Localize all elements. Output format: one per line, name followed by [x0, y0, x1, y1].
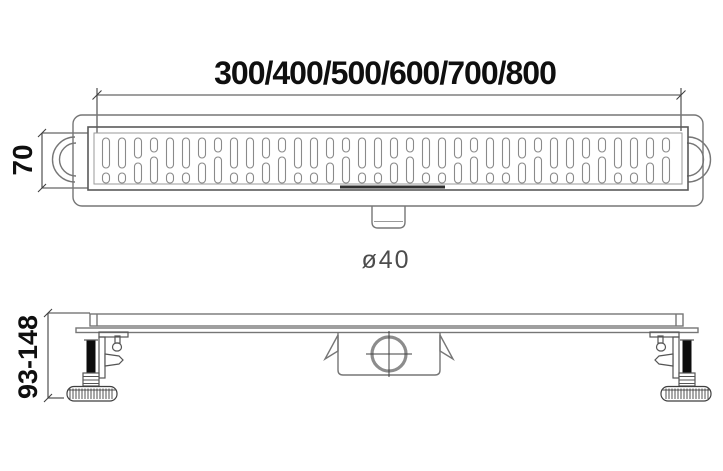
- grate-slot: [343, 157, 350, 183]
- grate-slot: [183, 173, 190, 183]
- grate-slot: [503, 138, 510, 168]
- adjustable-foot-right: [650, 332, 711, 401]
- grate-slot: [311, 138, 318, 168]
- height-range-label: 93-148: [11, 297, 45, 417]
- grate-slot: [359, 173, 366, 183]
- grate-slot: [503, 173, 510, 183]
- grate-slot: [551, 138, 558, 168]
- grate-slot: [583, 138, 590, 158]
- right-end-cap-arc-inner: [687, 143, 704, 176]
- grate-slot: [439, 138, 446, 168]
- grate-slot: [135, 138, 142, 158]
- grate-slot: [519, 163, 526, 183]
- foot-pin-cap: [113, 343, 122, 351]
- grate-slot: [359, 138, 366, 168]
- flange-plate: [76, 328, 698, 333]
- outlet-stub: [372, 206, 405, 228]
- grate-slot: [567, 138, 574, 168]
- grate-slot: [183, 138, 190, 168]
- grate-slot: [375, 173, 382, 183]
- grate-slot: [279, 138, 286, 152]
- grate-slot: [119, 173, 126, 183]
- grate-slot: [663, 157, 670, 183]
- grate-slot: [535, 138, 542, 152]
- grate-slot: [263, 163, 270, 183]
- grate-slot: [599, 138, 606, 152]
- grate-slot: [631, 173, 638, 183]
- foot-bracket-plate: [99, 337, 105, 378]
- grate-slot: [615, 138, 622, 168]
- outlet-diameter-label: ø40: [326, 245, 446, 275]
- grate-slot: [327, 138, 334, 158]
- grate-slot: [535, 157, 542, 183]
- grate-slot: [375, 138, 382, 168]
- grate-slot: [215, 157, 222, 183]
- grate-slot: [167, 173, 174, 183]
- grate-slot: [423, 138, 430, 168]
- trap-wing-right: [440, 335, 453, 359]
- grate-slot: [103, 138, 110, 168]
- grate-slot: [247, 138, 254, 168]
- grate-slot: [151, 157, 158, 183]
- grate-slot: [231, 138, 238, 168]
- trap-wing-left: [325, 335, 338, 359]
- foot-adjuster-sleeve: [83, 373, 99, 386]
- grate-slot: [455, 138, 462, 158]
- grate-slot: [279, 157, 286, 183]
- grate-slot: [103, 173, 110, 183]
- grate-slot: [263, 138, 270, 158]
- grate-slot: [327, 163, 334, 183]
- outlet-stub-outline: [372, 206, 405, 228]
- grate-slot: [487, 138, 494, 168]
- width-dimension-label: 70: [5, 130, 41, 190]
- grate-slot: [151, 138, 158, 152]
- grate-slot: [519, 138, 526, 158]
- grate-slot: [455, 163, 462, 183]
- grate-frame-outer: [88, 127, 688, 190]
- grate-slot-pattern: [103, 138, 670, 183]
- technical-drawing: 300/400/500/600/700/800 70 ø40 93-148: [0, 0, 723, 471]
- channel-body-side: [90, 314, 683, 326]
- grate-slot: [439, 173, 446, 183]
- adjustable-foot-left: [67, 332, 128, 401]
- grate-slot: [487, 173, 494, 183]
- grate-slot: [471, 138, 478, 152]
- grate-slot: [615, 173, 622, 183]
- foot-knurling: [70, 389, 112, 400]
- grate-slot: [247, 173, 254, 183]
- grate-slot: [599, 157, 606, 183]
- grate-slot: [583, 163, 590, 183]
- grate-slot: [647, 138, 654, 158]
- grate-slot: [407, 157, 414, 183]
- foot-clip: [105, 354, 123, 366]
- grate-slot: [231, 173, 238, 183]
- grate-slot: [119, 138, 126, 168]
- grate-slot: [631, 138, 638, 168]
- foot-threaded-rod: [87, 340, 96, 373]
- width-dimension: [38, 129, 88, 192]
- side-view: [44, 309, 711, 402]
- grate-slot: [391, 163, 398, 183]
- grate-slot: [215, 138, 222, 152]
- grate-slot: [423, 173, 430, 183]
- grate-slot: [407, 138, 414, 152]
- drain-trap: [325, 331, 453, 377]
- grate-slot: [647, 163, 654, 183]
- grate-slot: [343, 138, 350, 152]
- grate-slot: [567, 173, 574, 183]
- grate-slot: [199, 138, 206, 158]
- grate-slot: [199, 163, 206, 183]
- length-dimension-label: 300/400/500/600/700/800: [190, 55, 580, 91]
- grate-slot: [391, 138, 398, 158]
- grate-slot: [551, 173, 558, 183]
- grate-slot: [471, 157, 478, 183]
- top-view: [38, 88, 711, 228]
- grate-slot: [167, 138, 174, 168]
- foot-knurled-base: [67, 387, 117, 402]
- grate-slot: [295, 173, 302, 183]
- grate-slot: [311, 173, 318, 183]
- grate-slot: [135, 163, 142, 183]
- grate-slot: [295, 138, 302, 168]
- grate-slot: [663, 138, 670, 152]
